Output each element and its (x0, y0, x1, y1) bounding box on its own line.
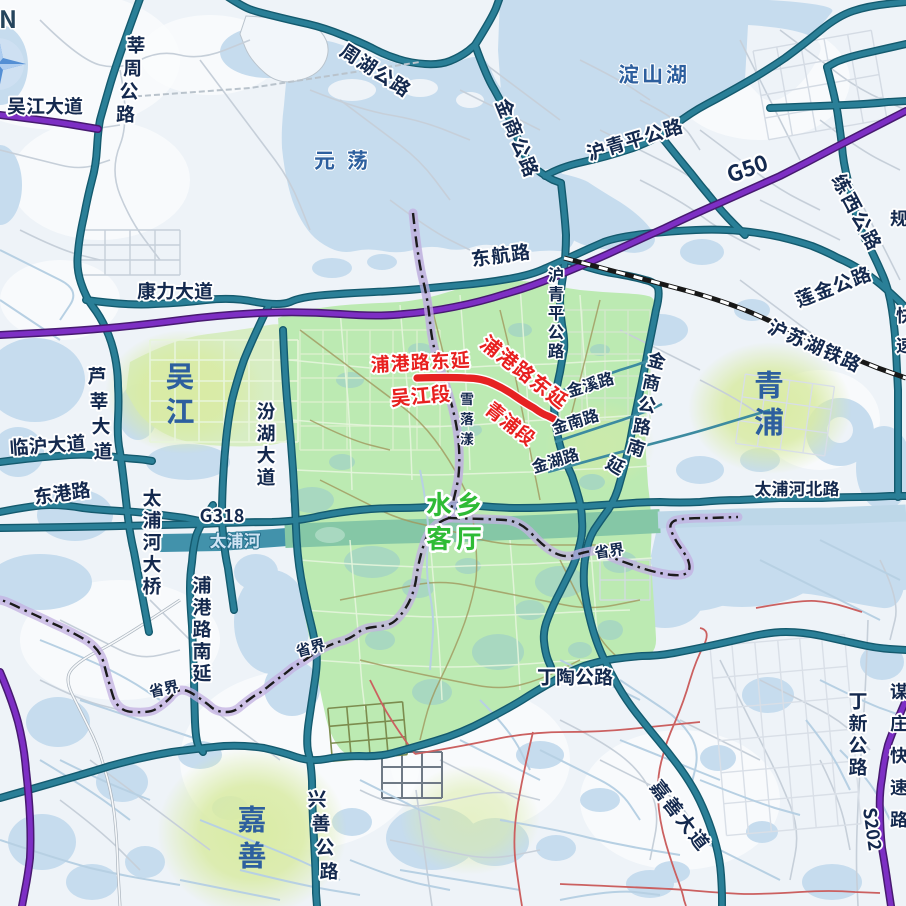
svg-text:大: 大 (91, 412, 110, 439)
svg-text:浦港路东延: 浦港路东延 (370, 345, 471, 377)
svg-text:水乡: 水乡 (426, 485, 486, 522)
svg-text:漾: 漾 (460, 429, 474, 449)
svg-text:太浦河: 太浦河 (210, 527, 261, 552)
svg-text:吴江段: 吴江段 (389, 377, 451, 411)
svg-text:康力大道: 康力大道 (137, 277, 213, 304)
svg-text:庄: 庄 (890, 710, 906, 736)
svg-text:雪: 雪 (460, 389, 474, 409)
svg-text:路: 路 (548, 338, 565, 362)
svg-text:太浦河北路: 太浦河北路 (755, 475, 840, 500)
svg-text:道: 道 (256, 463, 275, 490)
svg-text:浦: 浦 (754, 398, 784, 442)
svg-text:延: 延 (192, 659, 211, 686)
svg-text:莘: 莘 (89, 387, 108, 414)
svg-text:路: 路 (890, 806, 906, 832)
svg-text:路: 路 (319, 857, 338, 884)
svg-text:路: 路 (116, 100, 135, 127)
svg-text:吴江大道: 吴江大道 (7, 92, 83, 119)
svg-text:速: 速 (896, 332, 906, 358)
svg-text:客厅: 客厅 (426, 519, 486, 556)
svg-text:路: 路 (848, 753, 867, 780)
svg-text:道: 道 (93, 437, 112, 464)
svg-text:谋: 谋 (890, 678, 906, 704)
svg-text:桥: 桥 (142, 572, 161, 599)
svg-text:G318: G318 (200, 502, 245, 528)
svg-text:省界: 省界 (593, 538, 626, 563)
svg-text:善: 善 (237, 833, 266, 875)
svg-text:公: 公 (315, 833, 334, 860)
svg-text:善: 善 (311, 809, 330, 836)
svg-text:元荡: 元荡 (314, 145, 380, 175)
svg-text:快: 快 (896, 302, 906, 328)
svg-text:芦: 芦 (87, 362, 106, 389)
svg-text:淀山湖: 淀山湖 (618, 59, 690, 89)
svg-text:快: 快 (890, 742, 906, 768)
svg-text:规: 规 (890, 205, 906, 231)
svg-text:落: 落 (460, 409, 474, 429)
svg-text:江: 江 (165, 389, 194, 431)
svg-text:速: 速 (890, 774, 906, 800)
svg-text:兴: 兴 (307, 785, 326, 812)
svg-text:临沪大道: 临沪大道 (9, 428, 87, 460)
svg-text:N: N (0, 0, 17, 35)
svg-text:丁陶公路: 丁陶公路 (537, 663, 613, 690)
